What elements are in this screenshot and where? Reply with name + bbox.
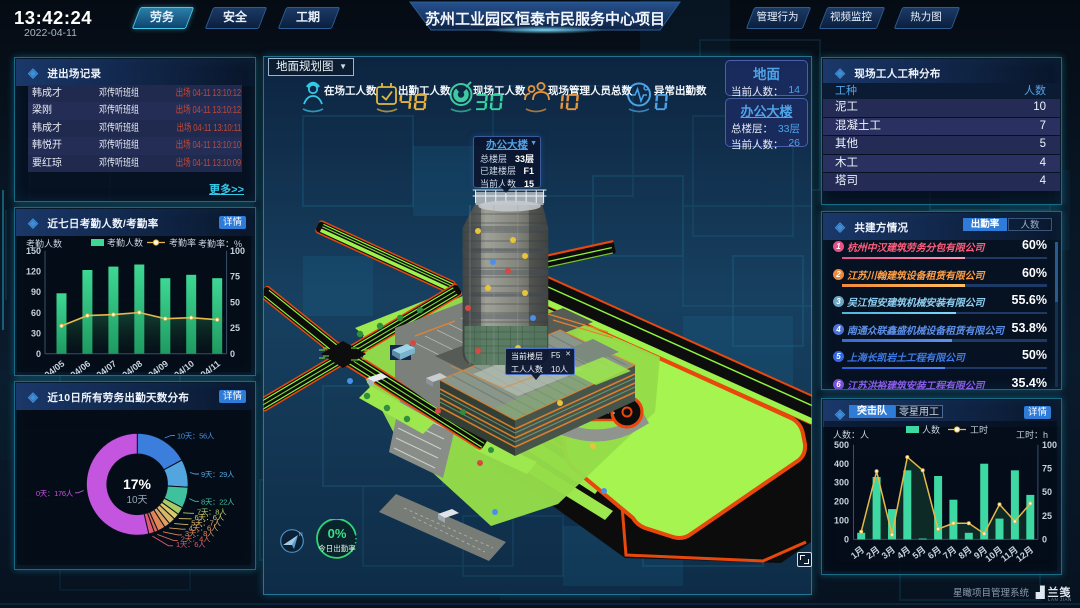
svg-text:400: 400 xyxy=(834,459,849,469)
svg-text:考勤人数: 考勤人数 xyxy=(107,237,143,248)
svg-text:60: 60 xyxy=(31,308,41,318)
svg-text:100: 100 xyxy=(1042,440,1057,450)
svg-text:10天: 10天 xyxy=(126,495,147,506)
svg-text:120: 120 xyxy=(26,267,41,277)
svg-text:17%: 17% xyxy=(123,476,152,492)
svg-text:0: 0 xyxy=(230,349,235,359)
svg-text:25: 25 xyxy=(230,323,240,333)
svg-text:300: 300 xyxy=(834,478,849,488)
svg-text:75: 75 xyxy=(1042,464,1052,474)
svg-text:100: 100 xyxy=(834,516,849,526)
svg-text:9天：29人: 9天：29人 xyxy=(201,470,235,479)
svg-text:人数: 人数 xyxy=(922,424,940,435)
svg-text:工时：h: 工时：h xyxy=(1016,429,1048,440)
svg-text:150: 150 xyxy=(26,246,41,256)
svg-text:10天：56人: 10天：56人 xyxy=(177,432,215,441)
svg-text:25: 25 xyxy=(1042,511,1052,521)
svg-text:0: 0 xyxy=(844,534,849,544)
svg-text:500: 500 xyxy=(834,440,849,450)
svg-text:0天：176人: 0天：176人 xyxy=(36,489,74,498)
svg-text:1天：6人: 1天：6人 xyxy=(176,540,206,549)
svg-text:50: 50 xyxy=(230,298,240,308)
svg-text:0%: 0% xyxy=(328,526,347,541)
svg-text:75: 75 xyxy=(230,272,240,282)
svg-text:100: 100 xyxy=(230,246,245,256)
svg-text:0: 0 xyxy=(36,349,41,359)
svg-text:30: 30 xyxy=(31,328,41,338)
svg-text:今日出勤率: 今日出勤率 xyxy=(318,543,356,553)
svg-text:N: N xyxy=(299,532,303,538)
svg-text:90: 90 xyxy=(31,287,41,297)
svg-text:考勤率: 考勤率 xyxy=(169,237,196,248)
svg-text:8天：22人: 8天：22人 xyxy=(201,497,235,506)
svg-text:50: 50 xyxy=(1042,487,1052,497)
svg-text:工时: 工时 xyxy=(970,424,988,435)
svg-text:200: 200 xyxy=(834,497,849,507)
svg-text:人数：人: 人数：人 xyxy=(833,429,869,440)
svg-text:0: 0 xyxy=(1042,534,1047,544)
